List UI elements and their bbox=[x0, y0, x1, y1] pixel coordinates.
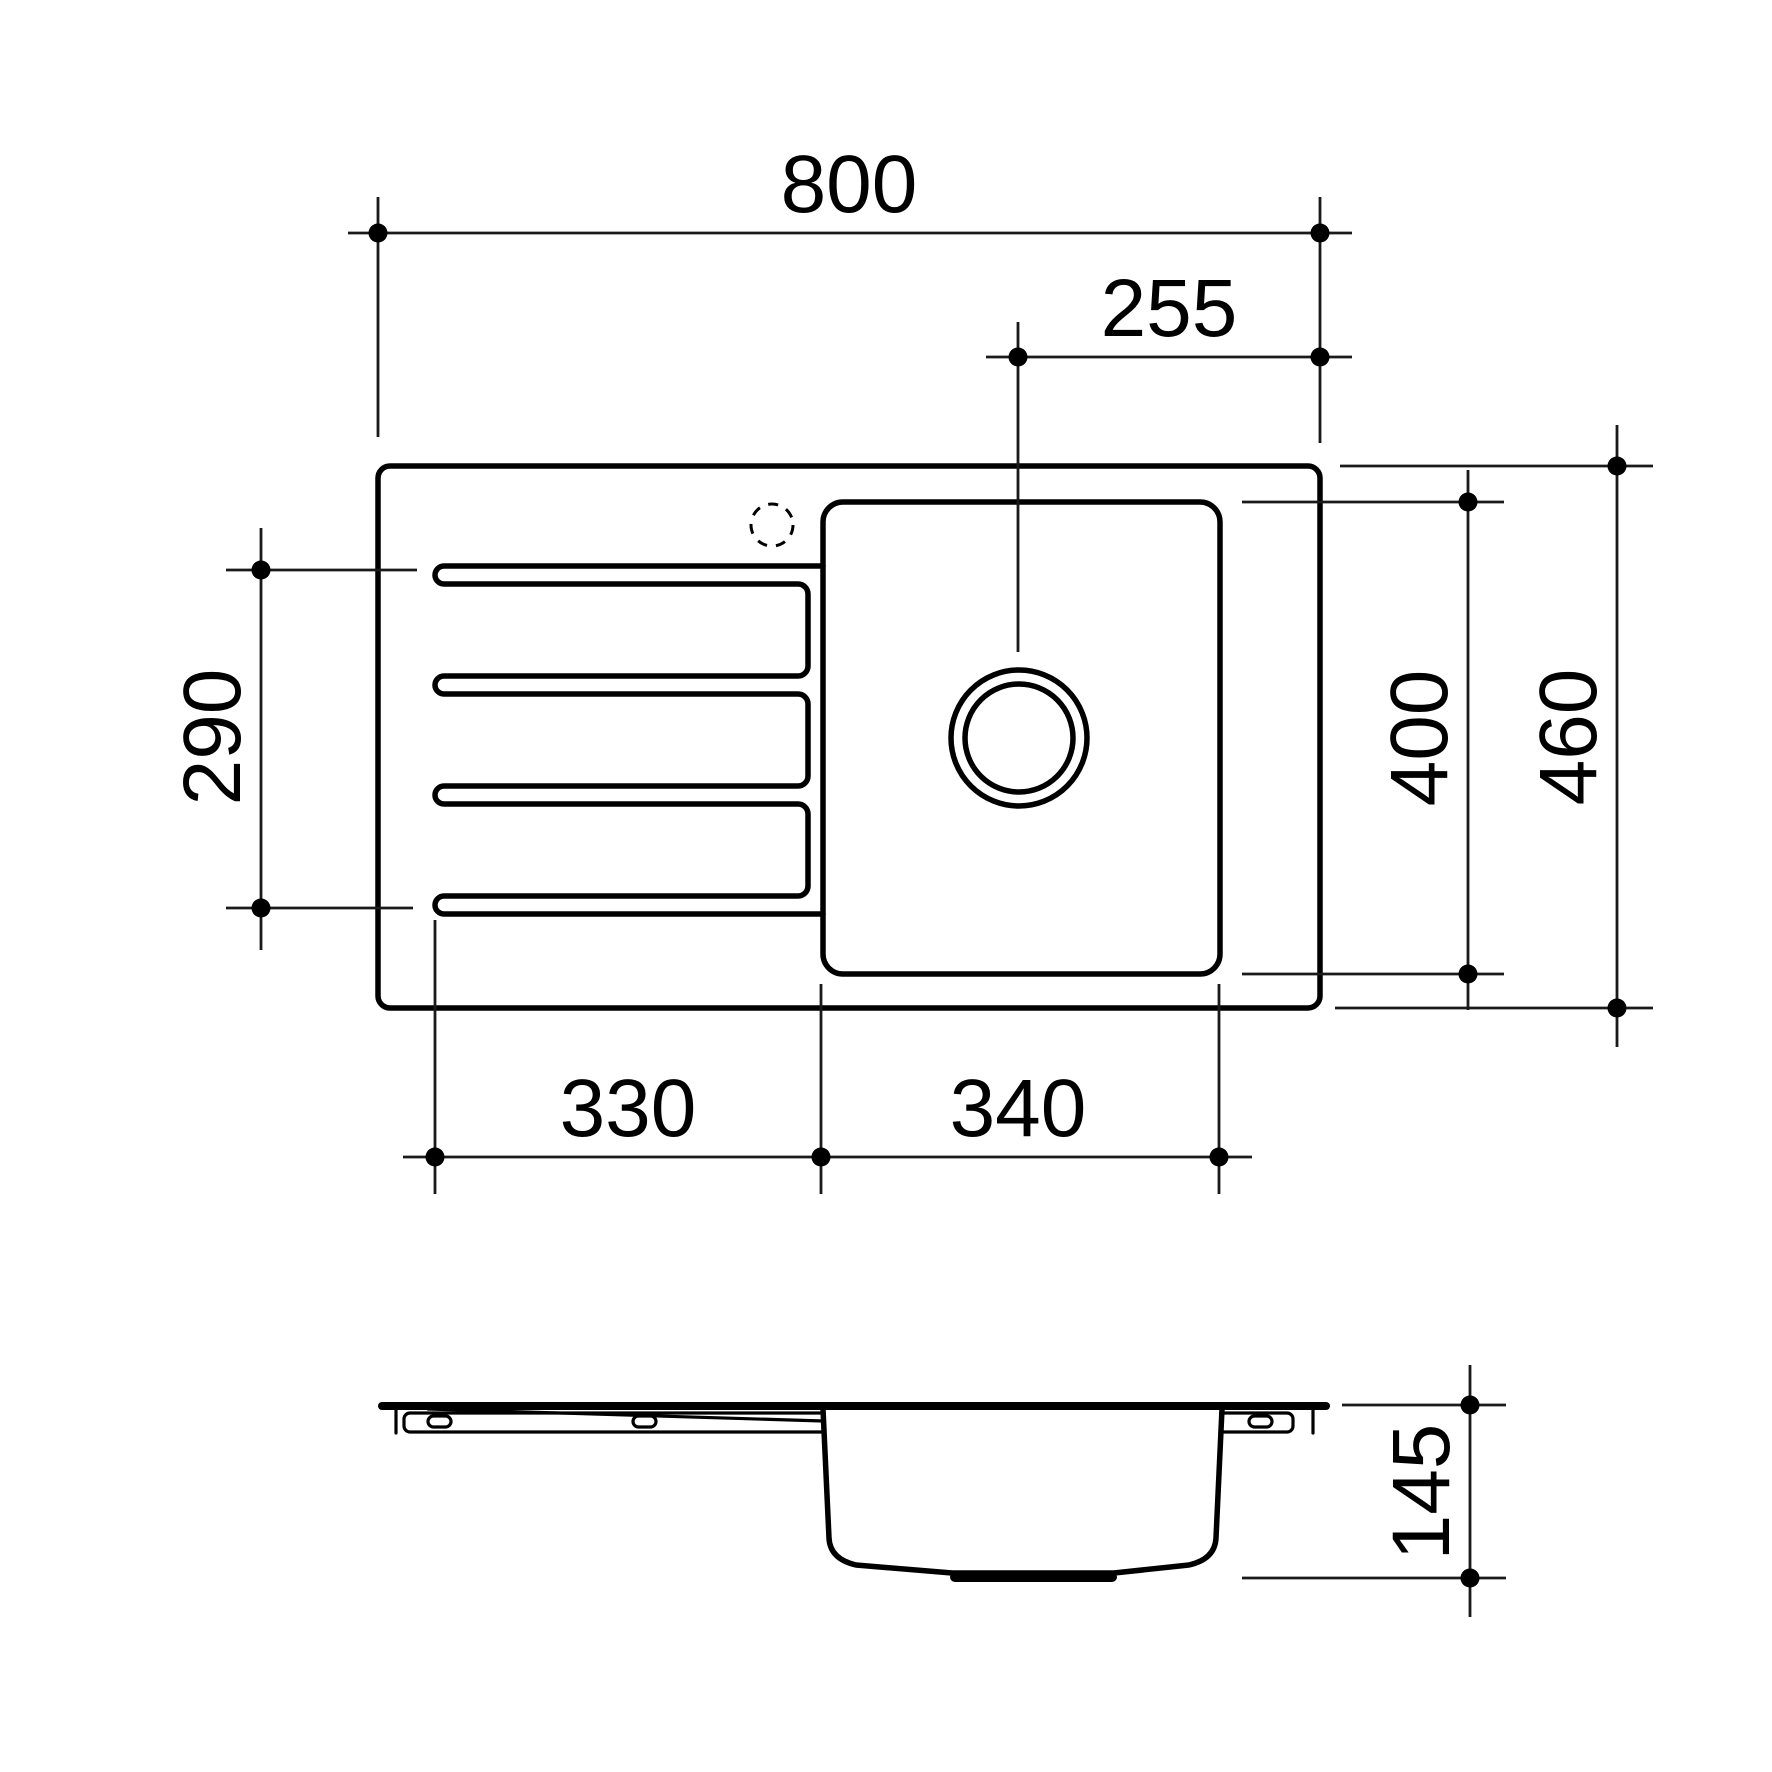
dim-290-label: 290 bbox=[167, 669, 258, 806]
dim-400-label: 400 bbox=[1374, 670, 1465, 807]
dim-460-label: 460 bbox=[1523, 669, 1614, 806]
dim-340-dot-right bbox=[1210, 1148, 1229, 1167]
dim-800-dot-left bbox=[369, 224, 388, 243]
drain-outer-circle bbox=[951, 670, 1087, 806]
tap-hole-dashed-circle bbox=[751, 504, 793, 546]
dim-800-label: 800 bbox=[781, 139, 918, 230]
dim-bottom-chain: 330 340 bbox=[403, 920, 1252, 1194]
sink-dimension-diagram: 800 255 290 400 bbox=[0, 0, 1772, 1772]
dim-145-dot-top bbox=[1461, 1396, 1480, 1415]
dim-340-label: 340 bbox=[950, 1063, 1087, 1154]
dim-255-label: 255 bbox=[1101, 263, 1238, 354]
dim-bowl-length: 400 bbox=[1242, 470, 1504, 1010]
bowl-outline bbox=[823, 502, 1220, 974]
technical-drawing-canvas: 800 255 290 400 bbox=[0, 0, 1772, 1772]
dim-145-label: 145 bbox=[1376, 1424, 1467, 1561]
dim-330-label: 330 bbox=[560, 1063, 697, 1154]
rail-slot-3 bbox=[1249, 1416, 1272, 1427]
dim-330-dot-mid bbox=[812, 1148, 831, 1167]
sink-rim-outline bbox=[378, 466, 1320, 1008]
dim-400-dot-top bbox=[1459, 493, 1478, 512]
dim-460-dot-top bbox=[1608, 457, 1627, 476]
rail-slot-2 bbox=[633, 1416, 656, 1427]
drain-inner-circle bbox=[965, 684, 1073, 792]
drainer-grooves-path bbox=[435, 566, 823, 914]
dim-drain-to-edge: 255 bbox=[986, 263, 1352, 652]
dim-255-dot-left bbox=[1009, 348, 1028, 367]
side-view bbox=[382, 1406, 1326, 1577]
dim-290-dot-top bbox=[252, 561, 271, 580]
bowl-side-profile bbox=[823, 1409, 1222, 1573]
plan-view bbox=[378, 466, 1320, 1008]
drainer-slope-line bbox=[428, 1409, 823, 1421]
rail-slot-1 bbox=[428, 1416, 451, 1427]
dim-330-dot-left bbox=[426, 1148, 445, 1167]
dim-400-dot-bottom bbox=[1459, 965, 1478, 984]
dim-800-dot-right bbox=[1311, 224, 1330, 243]
dim-145-dot-bottom bbox=[1461, 1569, 1480, 1588]
dim-290-dot-bottom bbox=[252, 899, 271, 918]
dim-255-dot-right bbox=[1311, 348, 1330, 367]
dim-460-dot-bottom bbox=[1608, 999, 1627, 1018]
